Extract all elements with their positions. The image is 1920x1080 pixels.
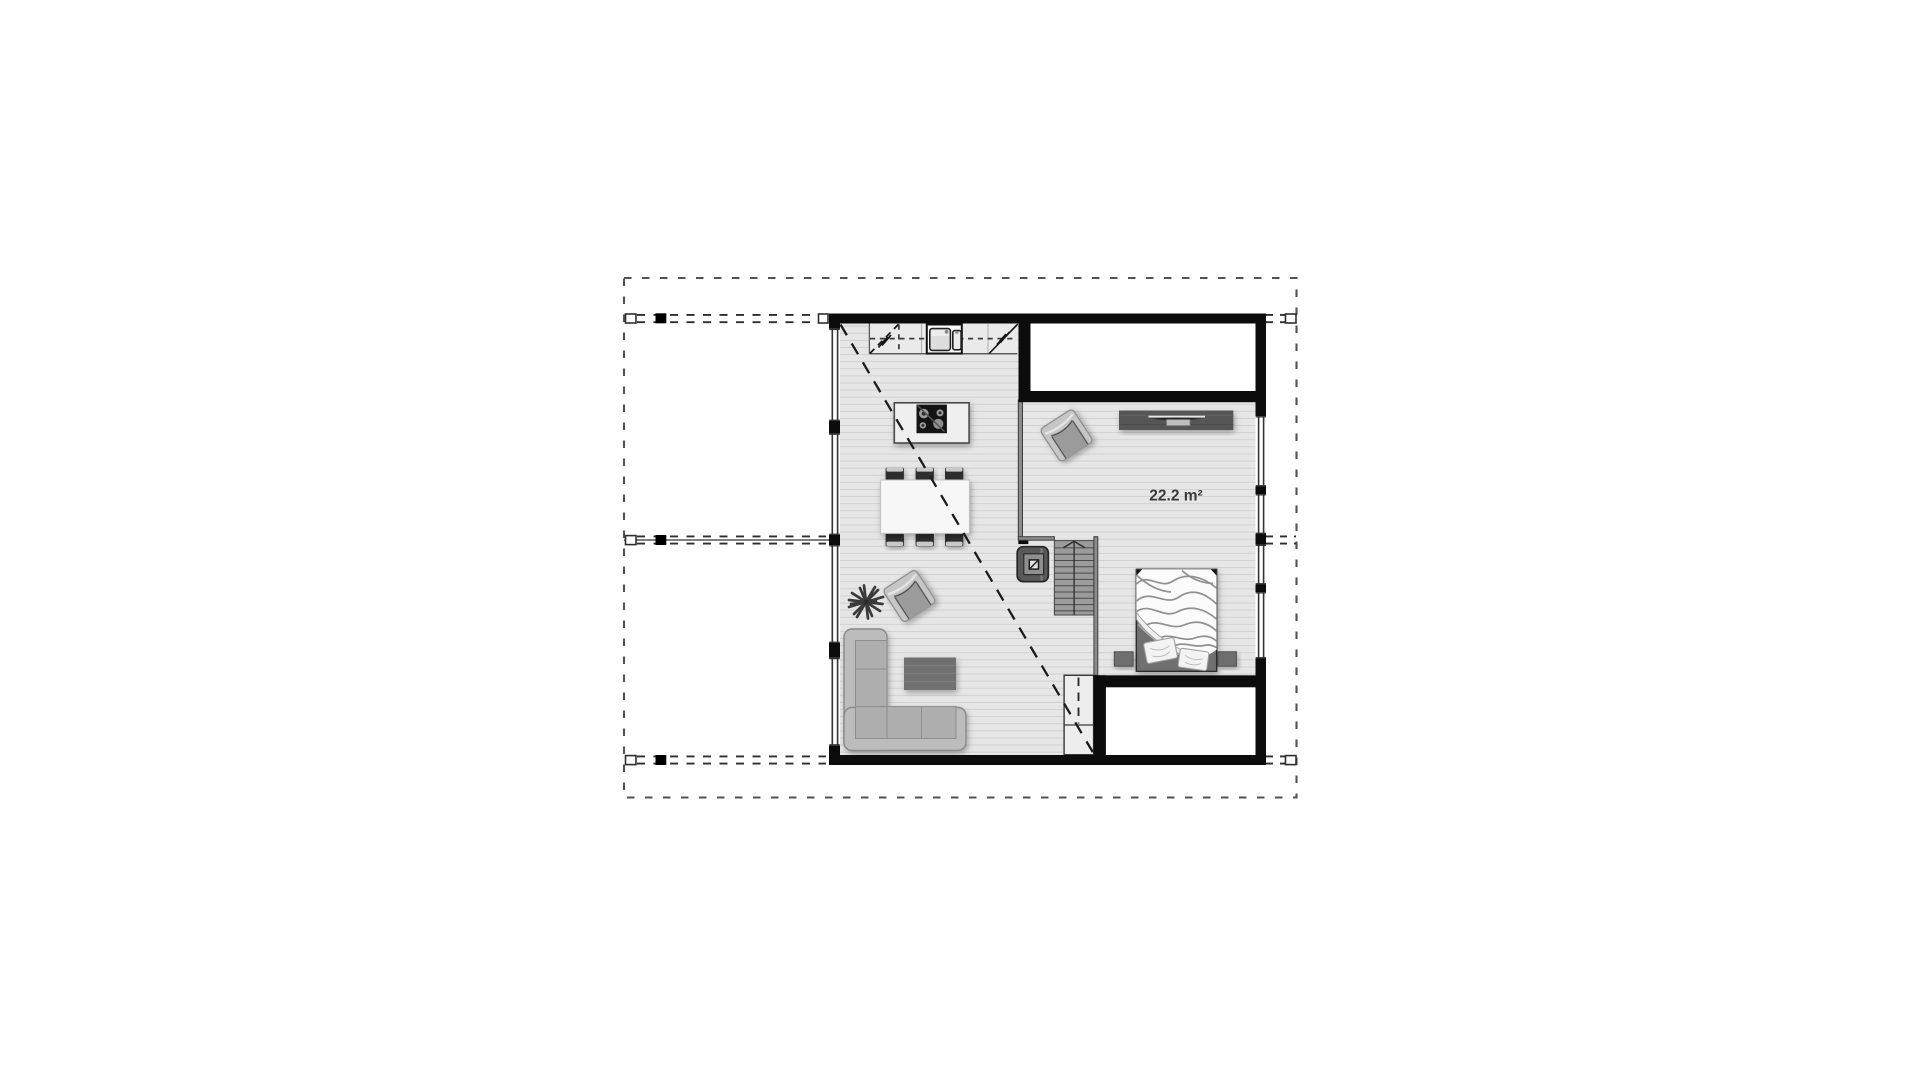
svg-text:22.2 m²: 22.2 m² — [1149, 488, 1202, 505]
